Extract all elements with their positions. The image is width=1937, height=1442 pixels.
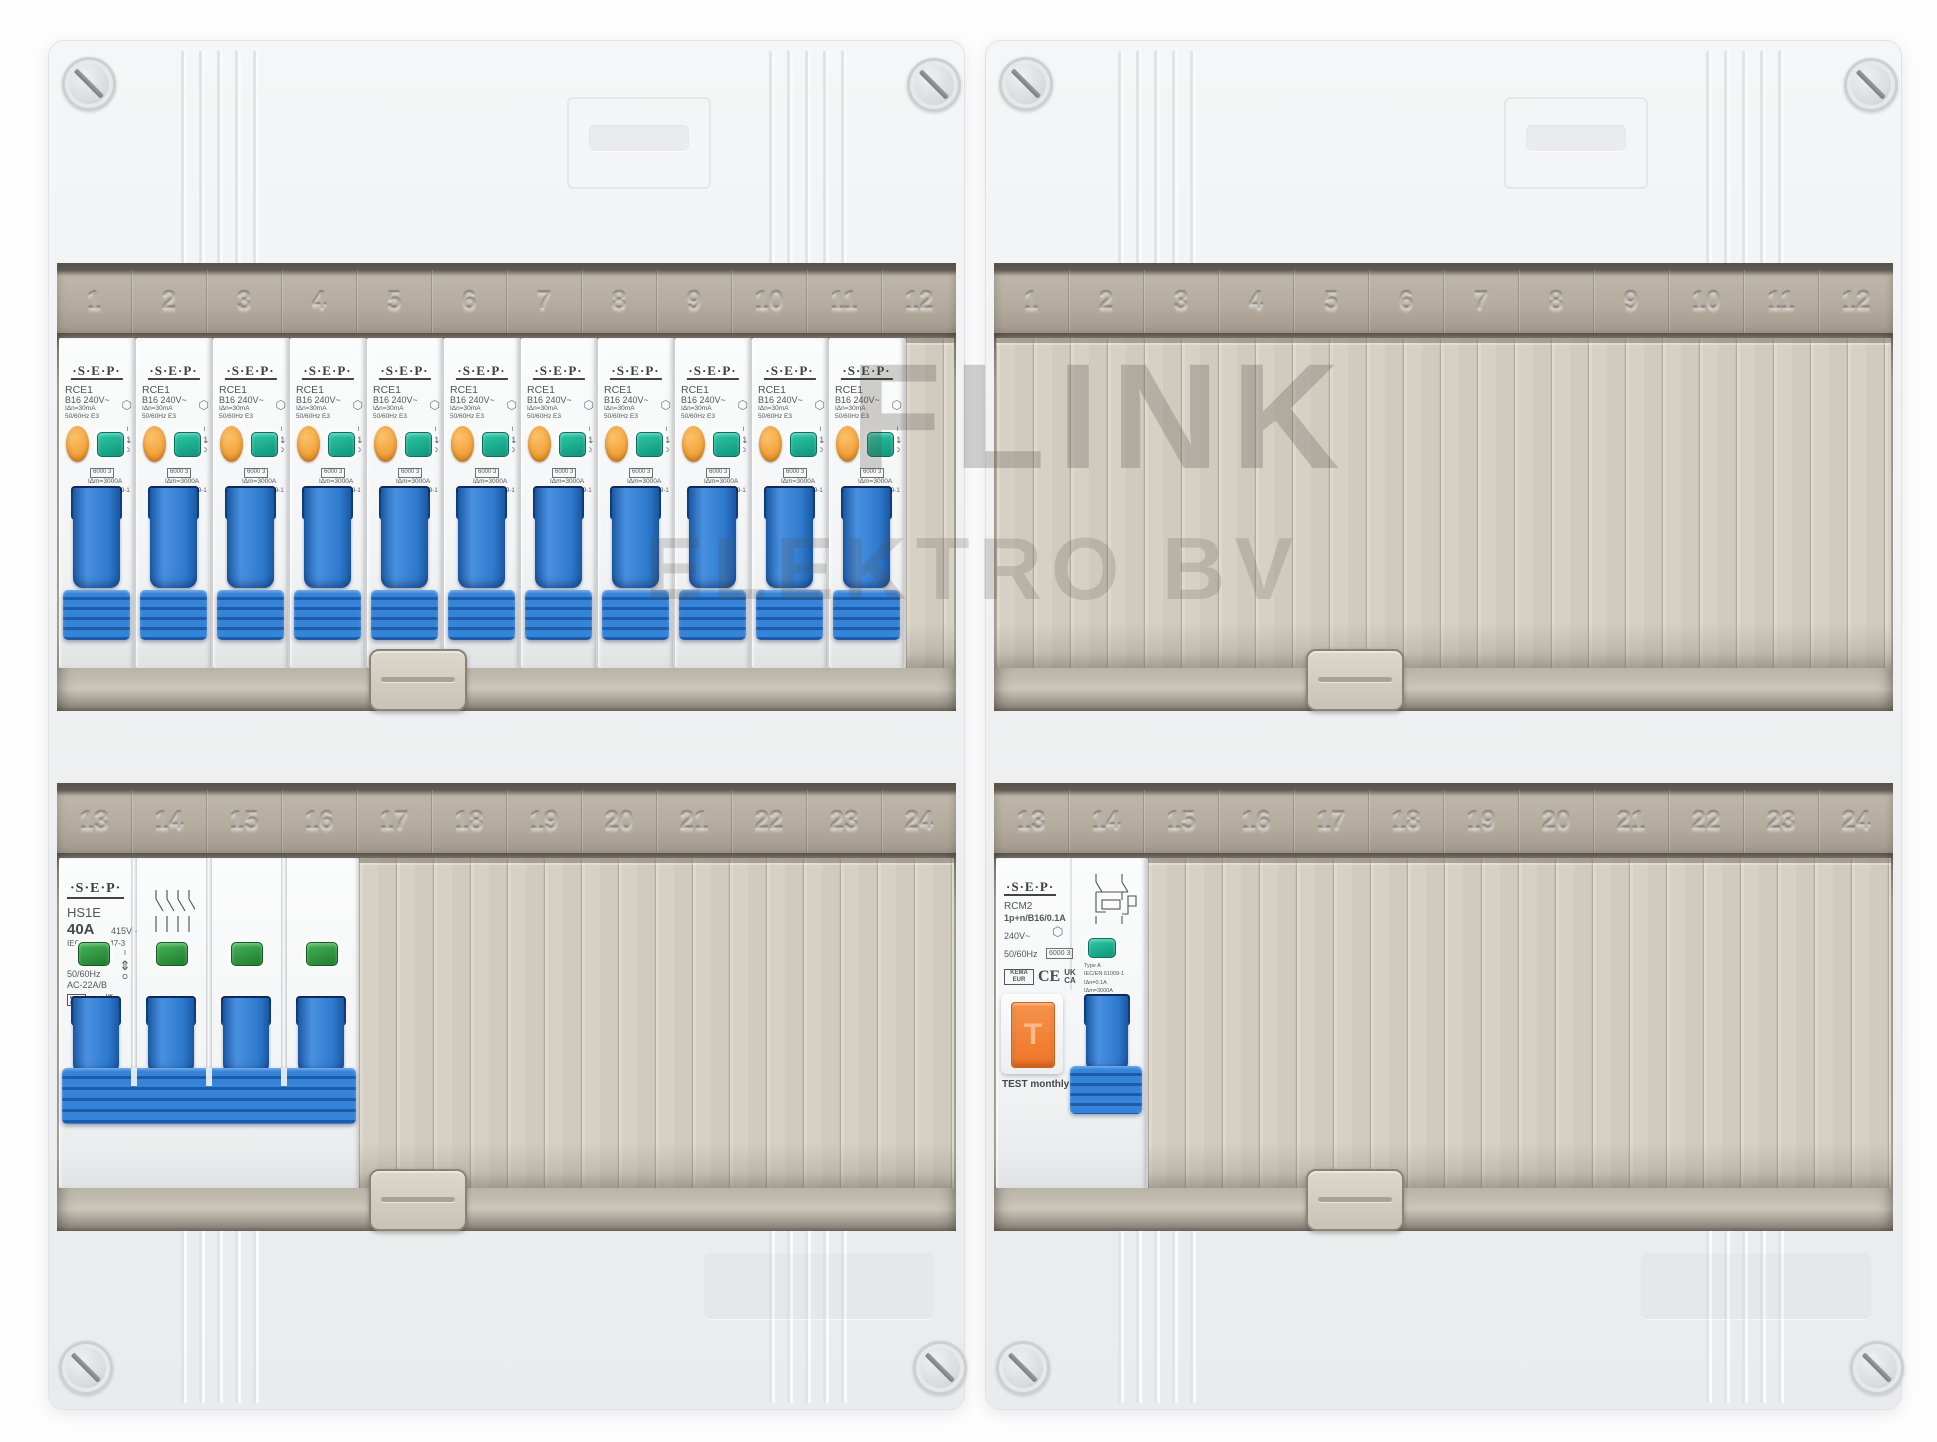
- certification-hexagon-icon: ⬡: [815, 398, 825, 412]
- brand-logo: ·S·E·P·: [455, 364, 507, 380]
- module-number: 6: [431, 270, 506, 333]
- screw-slot: [1862, 1353, 1892, 1383]
- certification-hexagon-icon: ⬡: [122, 398, 132, 412]
- switch-toggle[interactable]: [298, 998, 344, 1074]
- pole-notch: [131, 1068, 137, 1086]
- breaking-capacity-box: 6000 3: [90, 468, 114, 478]
- embossed-bottom-mark: [704, 1253, 934, 1319]
- status-indicator-window: [306, 942, 338, 966]
- sensitivity-label: IΔn=30mA: [604, 406, 635, 413]
- test-button[interactable]: [220, 426, 243, 462]
- im-rating-label: IΔm=3000A: [319, 479, 353, 486]
- certification-hexagon-icon: ⬡: [430, 398, 440, 412]
- screw-slot: [1856, 70, 1886, 100]
- blank-cover-plates: [359, 858, 954, 1188]
- updown-arrow-icon: ⇕: [119, 958, 131, 974]
- certification-hexagon-icon: ⬡: [353, 398, 363, 412]
- toggle-base[interactable]: [1070, 1066, 1142, 1114]
- toggle-base[interactable]: [140, 590, 207, 640]
- frequency-label: 50/60Hz E3: [758, 414, 792, 421]
- im-rating-label: IΔm=3000A: [242, 479, 276, 486]
- module-number: 3: [206, 270, 281, 333]
- sensitivity-label: IΔn=30mA: [681, 406, 712, 413]
- module-number: 10: [1668, 270, 1743, 333]
- rail-release-clip[interactable]: [1306, 1169, 1404, 1231]
- idn-label: IΔn=0.1A: [1084, 979, 1124, 987]
- on-off-markings: I⇅O: [662, 426, 671, 455]
- module-number: 4: [1218, 270, 1293, 333]
- test-button[interactable]: [836, 426, 859, 462]
- module-number-label: 6: [462, 286, 476, 317]
- on-off-markings: I⇅O: [431, 426, 440, 455]
- ce-mark: CE: [1038, 968, 1060, 986]
- sensitivity-label: IΔn=30mA: [527, 406, 558, 413]
- rail-release-clip[interactable]: [1306, 649, 1404, 711]
- rating-label: B16 240V~: [142, 396, 187, 405]
- module-number-label: 23: [830, 806, 859, 837]
- screw-slot: [1011, 69, 1041, 99]
- module-number: 2: [131, 270, 206, 333]
- on-label: I: [589, 427, 591, 433]
- module-number-label: 15: [1167, 806, 1196, 837]
- im-rating-label: IΔm=3000A: [88, 479, 122, 486]
- on-label: I: [281, 427, 283, 433]
- screw-icon: [996, 1341, 1050, 1395]
- status-indicator-window: [636, 432, 663, 457]
- frequency-label: 50/60Hz: [1004, 950, 1038, 959]
- module-number-label: 8: [612, 286, 626, 317]
- updown-arrow-icon: ⇅: [200, 434, 209, 447]
- breaking-capacity-box: 6000 3: [552, 468, 576, 478]
- updown-arrow-icon: ⇅: [739, 434, 748, 447]
- module-number: 15: [1143, 790, 1218, 853]
- off-label: O: [356, 448, 361, 454]
- type-label: Type A: [1084, 962, 1124, 970]
- module-number-label: 13: [80, 806, 109, 837]
- toggle-base[interactable]: [525, 590, 592, 640]
- screw-icon: [62, 57, 116, 111]
- module-number-label: 10: [1692, 286, 1721, 317]
- test-button[interactable]: [297, 426, 320, 462]
- status-indicator-window: [78, 942, 110, 966]
- updown-arrow-icon: ⇅: [816, 434, 825, 447]
- rcd-toggle[interactable]: [1086, 996, 1128, 1072]
- model-label: RCE1: [142, 385, 170, 396]
- test-button[interactable]: [528, 426, 551, 462]
- on-label: I: [743, 427, 745, 433]
- off-label: O: [279, 448, 284, 454]
- module-number: 3: [1143, 270, 1218, 333]
- toggle-base[interactable]: [756, 590, 823, 640]
- model-label: RCE1: [758, 385, 786, 396]
- pole-notch: [281, 1068, 287, 1086]
- rating-label: B16 240V~: [65, 396, 110, 405]
- toggle-base[interactable]: [448, 590, 515, 640]
- breaker-toggle[interactable]: [150, 488, 197, 588]
- im-rating-label: IΔm=3000A: [473, 479, 507, 486]
- module-number-label: 18: [1392, 806, 1421, 837]
- on-off-markings: I⇅O: [739, 426, 748, 455]
- module-number: 7: [506, 270, 581, 333]
- on-off-markings: I⇅O: [354, 426, 363, 455]
- module-number-label: 22: [755, 806, 784, 837]
- updown-arrow-icon: ⇅: [431, 434, 440, 447]
- brand-logo: ·S·E·P·: [147, 364, 199, 380]
- module-number-label: 9: [1624, 286, 1638, 317]
- module-number: 5: [356, 270, 431, 333]
- on-off-markings: I⇅O: [893, 426, 902, 455]
- module-number: 2: [1068, 270, 1143, 333]
- status-indicator-window: [156, 942, 188, 966]
- on-label: I: [358, 427, 360, 433]
- off-label: O: [433, 448, 438, 454]
- certification-hexagon-icon: ⬡: [892, 398, 902, 412]
- din-rail-window: ·S·E·P· HS1E 40A 415V~ IEC/EN 60947-3 50…: [57, 853, 956, 1231]
- module-number: 22: [1668, 790, 1743, 853]
- din-module-number-strip: 123456789101112: [994, 263, 1893, 333]
- off-label: O: [741, 448, 746, 454]
- module-number: 14: [1068, 790, 1143, 853]
- screw-icon: [1844, 58, 1898, 112]
- toggle-base[interactable]: [371, 590, 438, 640]
- module-number-label: 2: [162, 286, 176, 317]
- breaker-toggle[interactable]: [766, 488, 813, 588]
- module-number: 13: [994, 790, 1068, 853]
- breaking-capacity-box: 6000 3: [167, 468, 191, 478]
- breaker-toggle[interactable]: [535, 488, 582, 588]
- rating-label: B16 240V~: [527, 396, 572, 405]
- module-number: 9: [1593, 270, 1668, 333]
- certification-hexagon-icon: ⬡: [276, 398, 286, 412]
- module-number-label: 24: [1842, 806, 1871, 837]
- model-label: RCM2: [1004, 902, 1032, 912]
- module-number-label: 17: [1317, 806, 1346, 837]
- breaking-capacity-box: 6000 3: [398, 468, 422, 478]
- on-off-markings: I⇅O: [816, 426, 825, 455]
- test-button[interactable]: [451, 426, 474, 462]
- module-number: 14: [131, 790, 206, 853]
- test-button[interactable]: [682, 426, 705, 462]
- breaker-toggle[interactable]: [73, 488, 120, 588]
- switch-toggle[interactable]: [148, 998, 194, 1074]
- vent-grooves: [1701, 51, 1791, 263]
- status-indicator-window: [97, 432, 124, 457]
- module-number: 16: [281, 790, 356, 853]
- din-module-number-strip: 131415161718192021222324: [994, 783, 1893, 853]
- updown-arrow-icon: ⇅: [585, 434, 594, 447]
- embossed-wordmark: [589, 125, 690, 151]
- on-label: I: [127, 427, 129, 433]
- screw-icon: [1850, 1341, 1904, 1395]
- module-number: 18: [431, 790, 506, 853]
- module-number: 24: [1818, 790, 1893, 853]
- screw-icon: [913, 1341, 967, 1395]
- brand-logo: ·S·E·P·: [224, 364, 276, 380]
- sensitivity-label: IΔn=30mA: [65, 406, 96, 413]
- brand-logo: ·S·E·P·: [609, 364, 661, 380]
- module-number: 15: [206, 790, 281, 853]
- rcbo-breaker: ·S·E·P· RCE1 B16 240V~ IΔn=30mA 50/60Hz …: [598, 338, 675, 668]
- module-number: 16: [1218, 790, 1293, 853]
- breaker-toggle[interactable]: [381, 488, 428, 588]
- model-label: HS1E: [67, 906, 101, 919]
- rcbo-breaker: ·S·E·P· RCE1 B16 240V~ IΔn=30mA 50/60Hz …: [213, 338, 290, 668]
- model-label: RCE1: [527, 385, 555, 396]
- brand-logo: ·S·E·P·: [686, 364, 738, 380]
- din-rail-window: ·S·E·P· RCM2 1p+n/B16/0.1A 240V~ 50/60Hz…: [994, 853, 1893, 1231]
- frequency-label: 50/60Hz E3: [604, 414, 638, 421]
- test-button[interactable]: [374, 426, 397, 462]
- module-number-label: 18: [455, 806, 484, 837]
- module-number-label: 21: [680, 806, 709, 837]
- status-indicator-window: [867, 432, 894, 457]
- frequency-label: 50/60Hz: [67, 970, 101, 979]
- module-number-label: 20: [1542, 806, 1571, 837]
- toggle-base[interactable]: [602, 590, 669, 640]
- screw-icon: [999, 57, 1053, 111]
- module-number: 18: [1368, 790, 1443, 853]
- spec-label: 1p+n/B16/0.1A: [1004, 914, 1066, 923]
- module-number-label: 9: [687, 286, 701, 317]
- module-number: 12: [881, 270, 956, 333]
- module-number: 6: [1368, 270, 1443, 333]
- certification-marks: KEMA EURCEUK CA: [1004, 968, 1080, 986]
- sensitivity-label: IΔn=30mA: [296, 406, 327, 413]
- module-number-label: 11: [1767, 286, 1795, 317]
- module-number-label: 21: [1617, 806, 1646, 837]
- test-button[interactable]: [759, 426, 782, 462]
- voltage-label: 240V~: [1004, 932, 1030, 941]
- on-off-markings: I⇅O: [585, 426, 594, 455]
- module-number-label: 14: [1092, 806, 1121, 837]
- on-off-markings: I⇅O: [123, 426, 132, 455]
- embossed-wordmark: [1526, 125, 1627, 151]
- toggle-base[interactable]: [833, 590, 900, 640]
- product-photo-consumer-units: 123456789101112 ·S·E·P· RCE1 B16 240V~ I…: [0, 0, 1937, 1442]
- breaker-toggle[interactable]: [843, 488, 890, 588]
- brand-logo: ·S·E·P·: [1004, 880, 1056, 896]
- module-number: 17: [356, 790, 431, 853]
- module-number-label: 19: [1467, 806, 1496, 837]
- breaker-toggle[interactable]: [458, 488, 505, 588]
- module-number: 7: [1443, 270, 1518, 333]
- main-switch: ·S·E·P· HS1E 40A 415V~ IEC/EN 60947-3 50…: [59, 858, 359, 1188]
- module-number-label: 2: [1099, 286, 1113, 317]
- blank-cover-plates: [906, 338, 954, 668]
- embossed-bottom-mark: [1641, 1253, 1871, 1319]
- updown-arrow-icon: ⇅: [277, 434, 286, 447]
- switch-toggle[interactable]: [73, 998, 119, 1074]
- frequency-label: 50/60Hz E3: [681, 414, 715, 421]
- model-label: RCE1: [681, 385, 709, 396]
- switch-toggle[interactable]: [223, 998, 269, 1074]
- im-rating-label: IΔm=3000A: [858, 479, 892, 486]
- toggle-base[interactable]: [217, 590, 284, 640]
- module-separator: [1070, 858, 1072, 990]
- pole-notch: [206, 1068, 212, 1086]
- test-button[interactable]: [605, 426, 628, 462]
- certification-hexagon-icon: ⬡: [661, 398, 671, 412]
- rating-label: B16 240V~: [758, 396, 803, 405]
- module-number: 12: [1818, 270, 1893, 333]
- toggle-base[interactable]: [294, 590, 361, 640]
- im-rating-label: IΔm=3000A: [704, 479, 738, 486]
- residual-current-device: ·S·E·P· RCM2 1p+n/B16/0.1A 240V~ 50/60Hz…: [996, 858, 1148, 1188]
- frequency-label: 50/60Hz E3: [219, 414, 253, 421]
- test-button[interactable]: [66, 426, 89, 462]
- toggle-base[interactable]: [679, 590, 746, 640]
- module-number: 23: [806, 790, 881, 853]
- vent-grooves: [1113, 51, 1203, 263]
- test-monthly-label: TEST monthly: [1002, 1080, 1069, 1090]
- on-label: I: [435, 427, 437, 433]
- module-number-label: 20: [605, 806, 634, 837]
- model-label: RCE1: [835, 385, 863, 396]
- status-indicator-window: [231, 942, 263, 966]
- status-indicator-window: [713, 432, 740, 457]
- breaker-toggle[interactable]: [612, 488, 659, 588]
- test-button[interactable]: T: [1011, 1002, 1055, 1068]
- module-number-label: 12: [1842, 286, 1871, 317]
- rating-label: B16 240V~: [373, 396, 418, 405]
- module-number: 21: [656, 790, 731, 853]
- status-indicator-window: [174, 432, 201, 457]
- rail-release-clip[interactable]: [369, 1169, 467, 1231]
- screw-slot: [1008, 1353, 1038, 1383]
- rating-label: B16 240V~: [604, 396, 649, 405]
- rcbo-breaker: ·S·E·P· RCE1 B16 240V~ IΔn=30mA 50/60Hz …: [290, 338, 367, 668]
- brand-logo: ·S·E·P·: [840, 364, 892, 380]
- embossed-brand-logo: [1504, 97, 1648, 189]
- brand-logo: ·S·E·P·: [301, 364, 353, 380]
- updown-arrow-icon: ⇅: [893, 434, 902, 447]
- status-indicator-window: [251, 432, 278, 457]
- blank-cover-plates: [996, 338, 1891, 668]
- rcbo-breaker: ·S·E·P· RCE1 B16 240V~ IΔn=30mA 50/60Hz …: [444, 338, 521, 668]
- on-label: I: [204, 427, 206, 433]
- module-number-label: 6: [1399, 286, 1413, 317]
- module-number: 17: [1293, 790, 1368, 853]
- module-number-label: 10: [755, 286, 784, 317]
- breaking-capacity-box: 6000 3: [244, 468, 268, 478]
- rating-label: B16 240V~: [219, 396, 264, 405]
- spec-small-text: Type A IEC/EN 61009-1 IΔn=0.1A IΔm=3000A: [1084, 962, 1124, 995]
- toggle-base[interactable]: [63, 590, 130, 640]
- breaking-capacity-box: 6000 3: [706, 468, 730, 478]
- rcbo-breaker: ·S·E·P· RCE1 B16 240V~ IΔn=30mA 50/60Hz …: [136, 338, 213, 668]
- test-button[interactable]: [143, 426, 166, 462]
- blank-cover-plates: [1148, 858, 1891, 1188]
- module-number: 5: [1293, 270, 1368, 333]
- breaker-toggle[interactable]: [227, 488, 274, 588]
- module-number-label: 1: [1024, 286, 1038, 317]
- din-module-number-strip: 131415161718192021222324: [57, 783, 956, 853]
- rcbo-breaker: ·S·E·P· RCE1 B16 240V~ IΔn=30mA 50/60Hz …: [829, 338, 906, 668]
- certification-hexagon-icon: ⬡: [584, 398, 594, 412]
- rcbo-breaker: ·S·E·P· RCE1 B16 240V~ IΔn=30mA 50/60Hz …: [367, 338, 444, 668]
- module-number: 1: [994, 270, 1068, 333]
- status-indicator-window: [482, 432, 509, 457]
- module-number-label: 14: [155, 806, 184, 837]
- model-label: RCE1: [604, 385, 632, 396]
- screw-slot: [71, 1353, 101, 1383]
- sensitivity-label: IΔn=30mA: [219, 406, 250, 413]
- vent-grooves: [764, 51, 854, 263]
- off-label: O: [895, 448, 900, 454]
- breaking-capacity-box: 6000 3: [783, 468, 807, 478]
- on-off-markings: I⇅O: [508, 426, 517, 455]
- module-number-label: 1: [87, 286, 101, 317]
- module-number: 20: [1518, 790, 1593, 853]
- vent-grooves: [176, 51, 266, 263]
- screw-icon: [907, 58, 961, 112]
- frequency-label: 50/60Hz E3: [65, 414, 99, 421]
- model-label: RCE1: [219, 385, 247, 396]
- embossed-brand-logo: [567, 97, 711, 189]
- module-number-label: 23: [1767, 806, 1796, 837]
- circuit-diagram-icon: [1082, 872, 1140, 926]
- on-label: I: [124, 950, 126, 957]
- certification-hexagon-icon: ⬡: [738, 398, 748, 412]
- module-number: 1: [57, 270, 131, 333]
- module-number: 24: [881, 790, 956, 853]
- module-number: 4: [281, 270, 356, 333]
- module-number-label: 17: [380, 806, 409, 837]
- status-indicator-window: [405, 432, 432, 457]
- on-label: I: [820, 427, 822, 433]
- model-label: RCE1: [373, 385, 401, 396]
- din-rail-window: ·S·E·P· RCE1 B16 240V~ IΔn=30mA 50/60Hz …: [57, 333, 956, 711]
- frequency-label: 50/60Hz E3: [450, 414, 484, 421]
- circuit-diagram-icon: [151, 886, 195, 938]
- rating-label: B16 240V~: [296, 396, 341, 405]
- breaking-capacity-box: 6000 3: [321, 468, 345, 478]
- off-label: O: [510, 448, 515, 454]
- module-number-label: 4: [312, 286, 326, 317]
- screw-slot: [925, 1353, 955, 1383]
- module-number: 22: [731, 790, 806, 853]
- module-number-label: 24: [905, 806, 934, 837]
- on-label: I: [666, 427, 668, 433]
- rail-release-clip[interactable]: [369, 649, 467, 711]
- sensitivity-label: IΔn=30mA: [142, 406, 173, 413]
- module-number: 20: [581, 790, 656, 853]
- frequency-label: 50/60Hz E3: [142, 414, 176, 421]
- off-label: O: [818, 448, 823, 454]
- off-label: O: [122, 974, 127, 981]
- model-label: RCE1: [450, 385, 478, 396]
- rating-label: 40A: [67, 922, 95, 937]
- brand-logo: ·S·E·P·: [70, 364, 122, 380]
- screw-slot: [919, 70, 949, 100]
- module-number-label: 3: [1174, 286, 1188, 317]
- brand-logo: ·S·E·P·: [532, 364, 584, 380]
- breaker-toggle[interactable]: [689, 488, 736, 588]
- on-off-markings: I⇅O: [277, 426, 286, 455]
- im-rating-label: IΔm=3000A: [550, 479, 584, 486]
- screw-icon: [59, 1341, 113, 1395]
- breaker-toggle[interactable]: [304, 488, 351, 588]
- utilization-label: AC-22A/B: [67, 981, 107, 990]
- rating-label: B16 240V~: [835, 396, 880, 405]
- frequency-label: 50/60Hz E3: [527, 414, 561, 421]
- status-indicator-window: [559, 432, 586, 457]
- updown-arrow-icon: ⇅: [662, 434, 671, 447]
- module-number-label: 12: [905, 286, 934, 317]
- rcbo-breaker: ·S·E·P· RCE1 B16 240V~ IΔn=30mA 50/60Hz …: [752, 338, 829, 668]
- on-label: I: [897, 427, 899, 433]
- brand-logo: ·S·E·P·: [378, 364, 430, 380]
